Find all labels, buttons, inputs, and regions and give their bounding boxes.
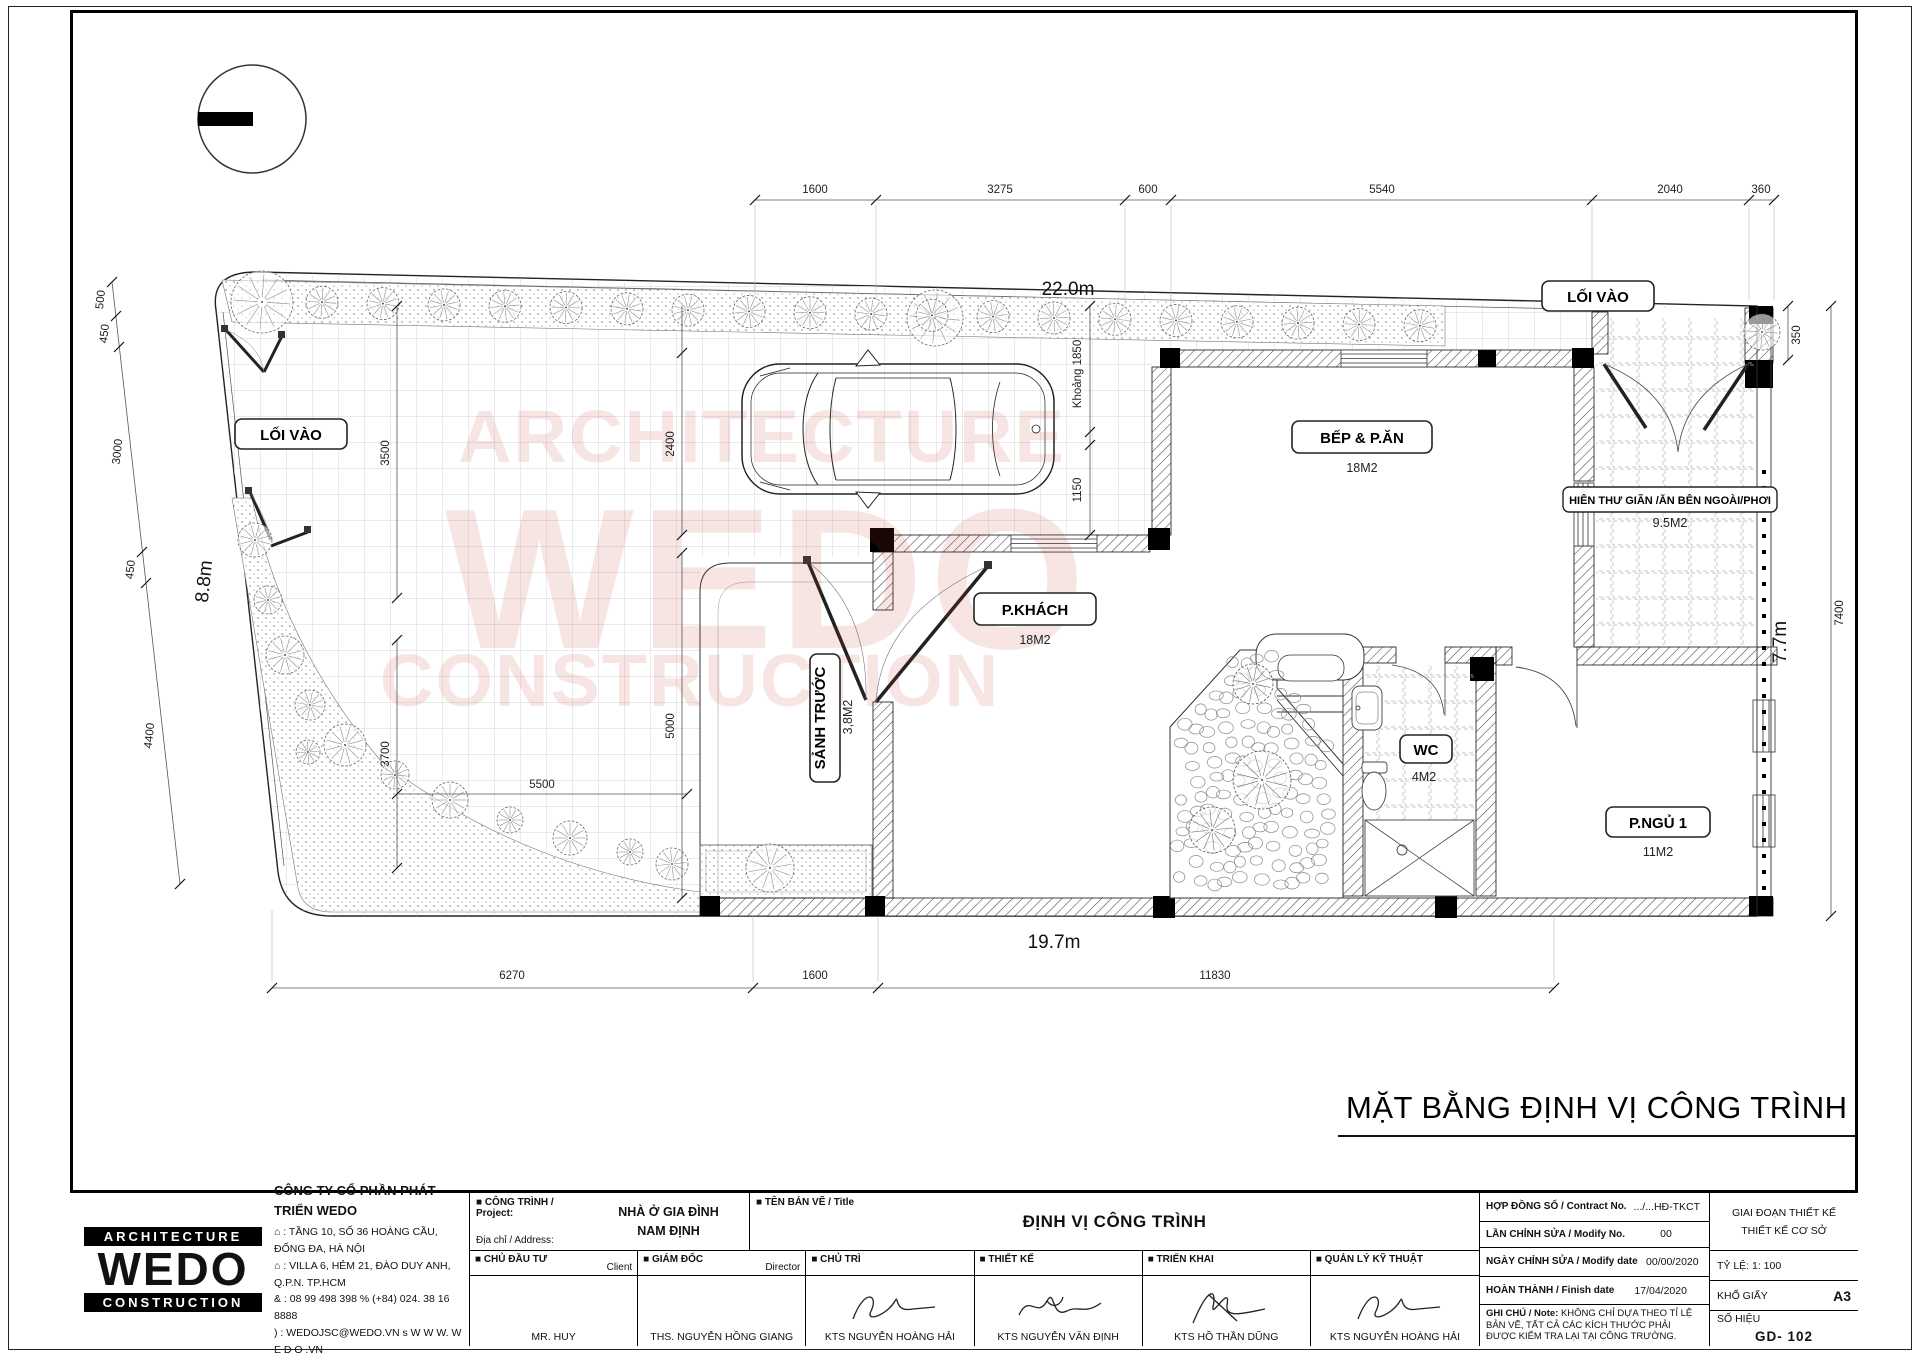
project-label: ■ CÔNG TRÌNH / Project: [476,1197,586,1219]
north-symbol-icon [198,65,306,173]
svg-text:CONSTRUCTION: CONSTRUCTION [380,639,1000,722]
svg-text:LỐI VÀO: LỐI VÀO [260,426,322,444]
person-name: KTS NGUYỄN HOÀNG HẢI [1311,1331,1479,1346]
svg-text:18M2: 18M2 [1346,461,1377,475]
signature [835,1281,945,1327]
signature [1340,1281,1450,1327]
meta-value: .../...HĐ-TKCT [1631,1201,1703,1213]
company-info: CÔNG TY CỔ PHẦN PHÁT TRIỂN WEDO ⌂ : TẦNG… [274,1181,465,1358]
signature-row: ■ CHỦ ĐẦU TƯClient MR. HUY ■ GIÁM ĐỐCDir… [470,1251,1479,1346]
meta-label: LẦN CHỈNH SỬA / Modify No. [1486,1229,1625,1240]
svg-text:450: 450 [98,324,112,344]
company-web: ) : WEDOJSC@WEDO.VN s W W W. W E D O .VN [274,1325,465,1358]
svg-text:P.NGỦ 1: P.NGỦ 1 [1629,814,1687,832]
svg-text:600: 600 [1138,184,1157,196]
signature [1171,1281,1281,1327]
svg-text:22.0m: 22.0m [1042,279,1095,300]
sheet-no-label: SỐ HIỆU [1717,1313,1851,1325]
svg-text:P.KHÁCH: P.KHÁCH [1002,602,1068,619]
project-name-line1: NHÀ Ở GIA ĐÌNH [618,1203,718,1222]
svg-text:HIÊN THƯ GIÃN /ĂN BÊN NGOÀI/PH: HIÊN THƯ GIÃN /ĂN BÊN NGOÀI/PHƠI [1569,494,1771,507]
svg-text:7400: 7400 [1834,600,1846,626]
svg-text:9.5M2: 9.5M2 [1653,516,1688,530]
svg-text:1600: 1600 [802,184,828,196]
signature [1003,1281,1113,1327]
svg-text:18M2: 18M2 [1019,633,1050,647]
sheet-no-cell: SỐ HIỆU GD- 102 [1710,1311,1858,1346]
wedo-logo: ARCHITECTURE WEDO CONSTRUCTION [84,1227,262,1312]
room-label-entrance-top: LỐI VÀO [1542,281,1654,311]
sheet-no-value: GD- 102 [1717,1329,1851,1344]
person-cell-develop: ■ TRIỂN KHAI KTS HỒ THẦN DŨNG [1143,1251,1311,1346]
svg-text:4M2: 4M2 [1412,770,1436,784]
floor-plan-canvas: ARCHITECTURE WEDO CONSTRUCTION 1600 3275… [0,0,1920,1190]
project-cell: ■ CÔNG TRÌNH / Project: Địa chỉ / Addres… [470,1193,750,1250]
svg-text:1150: 1150 [1072,478,1084,503]
person-label: ■ CHỦ ĐẦU TƯ [475,1254,547,1265]
person-label: ■ TRIỂN KHAI [1148,1254,1214,1265]
paper-size: A3 [1833,1288,1851,1304]
watermark: ARCHITECTURE WEDO CONSTRUCTION [380,395,1091,722]
svg-text:8.8m: 8.8m [192,559,217,603]
person-label: ■ QUẢN LÝ KỸ THUẬT [1316,1254,1423,1265]
note-cell: GHI CHÚ / Note: KHÔNG CHỈ DỰA THEO TỈ LỆ… [1480,1305,1709,1346]
svg-text:5000: 5000 [665,713,677,739]
person-name: THS. NGUYỄN HỒNG GIANG [638,1331,805,1346]
svg-text:Khoảng 1850: Khoảng 1850 [1072,340,1084,408]
company-address-2: ⌂ : VILLA 6, HẺM 21, ĐÀO DUY ANH, Q.P.N.… [274,1258,465,1292]
project-name-line2: NAM ĐỊNH [637,1222,700,1241]
meta-label: HỢP ĐỒNG SỐ / Contract No. [1486,1201,1627,1212]
logo-wedo-word: WEDO [84,1246,262,1293]
person-sublabel: Client [607,1262,633,1273]
meta-label: NGÀY CHỈNH SỬA / Modify date [1486,1256,1638,1267]
person-sublabel: Director [765,1262,800,1273]
svg-text:6270: 6270 [499,970,525,982]
svg-text:3275: 3275 [987,184,1013,196]
svg-text:5540: 5540 [1369,184,1395,196]
svg-text:3,8M2: 3,8M2 [841,700,855,735]
logo-construction-bar: CONSTRUCTION [84,1293,262,1312]
svg-text:3500: 3500 [380,440,392,466]
svg-text:1600: 1600 [802,970,828,982]
company-cell: ARCHITECTURE WEDO CONSTRUCTION CÔNG TY C… [70,1193,470,1346]
drawing-title: MẶT BẰNG ĐỊNH VỊ CÔNG TRÌNH [1338,1090,1856,1137]
meta-value: 00 [1629,1228,1703,1240]
svg-text:350: 350 [1791,325,1803,344]
svg-text:19.7m: 19.7m [1028,932,1081,953]
person-name: KTS HỒ THẦN DŨNG [1143,1331,1310,1346]
svg-text:2400: 2400 [665,431,677,457]
note-label: GHI CHÚ / Note: [1486,1308,1558,1319]
drawing-name-value: ĐỊNH VỊ CÔNG TRÌNH [750,1193,1479,1250]
company-phones: & : 08 99 498 398 % (+84) 024. 38 16 888… [274,1291,465,1325]
company-name: CÔNG TY CỔ PHẦN PHÁT TRIỂN WEDO [274,1181,465,1223]
svg-text:WC: WC [1414,742,1439,759]
svg-text:5500: 5500 [529,779,555,791]
person-cell-client: ■ CHỦ ĐẦU TƯClient MR. HUY [470,1251,638,1346]
person-label: ■ GIÁM ĐỐC [643,1254,703,1265]
meta-label: HOÀN THÀNH / Finish date [1486,1285,1614,1296]
meta-value: 00/00/2020 [1642,1256,1703,1268]
drawing-name-cell: ■ TÊN BẢN VẼ / Title ĐỊNH VỊ CÔNG TRÌNH [750,1193,1479,1250]
person-cell-lead: ■ CHỦ TRÌ KTS NGUYỄN HOÀNG HẢI [806,1251,974,1346]
room-label-entrance-left: LỐI VÀO [235,419,347,449]
person-name: KTS NGUYỄN VĂN ĐỊNH [975,1331,1142,1346]
person-name: KTS NGUYỄN HOÀNG HẢI [806,1331,973,1346]
person-name: MR. HUY [470,1331,637,1346]
project-title-cell: ■ CÔNG TRÌNH / Project: Địa chỉ / Addres… [470,1193,1480,1346]
svg-text:4400: 4400 [143,722,158,749]
drawing-sheet: ARCHITECTURE WEDO CONSTRUCTION 1600 3275… [0,0,1920,1358]
person-label: ■ THIẾT KẾ [980,1254,1034,1265]
svg-text:3000: 3000 [111,438,126,465]
person-cell-design: ■ THIẾT KẾ KTS NGUYỄN VĂN ĐỊNH [975,1251,1143,1346]
stage-line2: THIẾT KẾ CƠ SỞ [1717,1225,1851,1237]
svg-text:450: 450 [124,560,138,580]
stage-line1: GIAI ĐOẠN THIẾT KẾ [1717,1207,1851,1219]
svg-text:11830: 11830 [1199,970,1230,982]
paper-cell: KHỔ GIẤY A3 [1710,1281,1858,1311]
company-address-1: ⌂ : TẦNG 10, SỐ 36 HOÀNG CẦU, ĐỐNG ĐA, H… [274,1224,465,1258]
svg-text:ARCHITECTURE: ARCHITECTURE [458,395,1066,478]
meta-value: 17/04/2020 [1618,1285,1703,1297]
svg-text:LỐI VÀO: LỐI VÀO [1567,288,1629,306]
person-label: ■ CHỦ TRÌ [811,1254,860,1265]
title-block: ARCHITECTURE WEDO CONSTRUCTION CÔNG TY C… [70,1190,1858,1346]
terrace-floor [1596,318,1755,645]
paper-label: KHỔ GIẤY [1717,1290,1768,1302]
svg-text:500: 500 [94,290,108,310]
svg-text:11M2: 11M2 [1643,845,1673,859]
scale-cell: TỶ LỆ: 1: 100 [1710,1251,1858,1281]
svg-text:3700: 3700 [380,741,392,767]
address-label: Địa chỉ / Address: [476,1235,586,1246]
svg-text:2040: 2040 [1657,184,1683,196]
svg-text:360: 360 [1751,184,1770,196]
person-cell-director: ■ GIÁM ĐỐCDirector THS. NGUYỄN HỒNG GIAN… [638,1251,806,1346]
stage-cell: GIAI ĐOẠN THIẾT KẾ THIẾT KẾ CƠ SỞ TỶ LỆ:… [1710,1193,1858,1346]
meta-cell: HỢP ĐỒNG SỐ / Contract No..../...HĐ-TKCT… [1480,1193,1710,1346]
svg-text:7.7m: 7.7m [1770,621,1791,663]
project-name: NHÀ Ở GIA ĐÌNH NAM ĐỊNH [588,1193,749,1250]
svg-text:SẢNH TRƯỚC: SẢNH TRƯỚC [811,666,829,769]
svg-text:BẾP & P.ĂN: BẾP & P.ĂN [1320,430,1404,447]
person-cell-qa: ■ QUẢN LÝ KỸ THUẬT KTS NGUYỄN HOÀNG HẢI [1311,1251,1479,1346]
